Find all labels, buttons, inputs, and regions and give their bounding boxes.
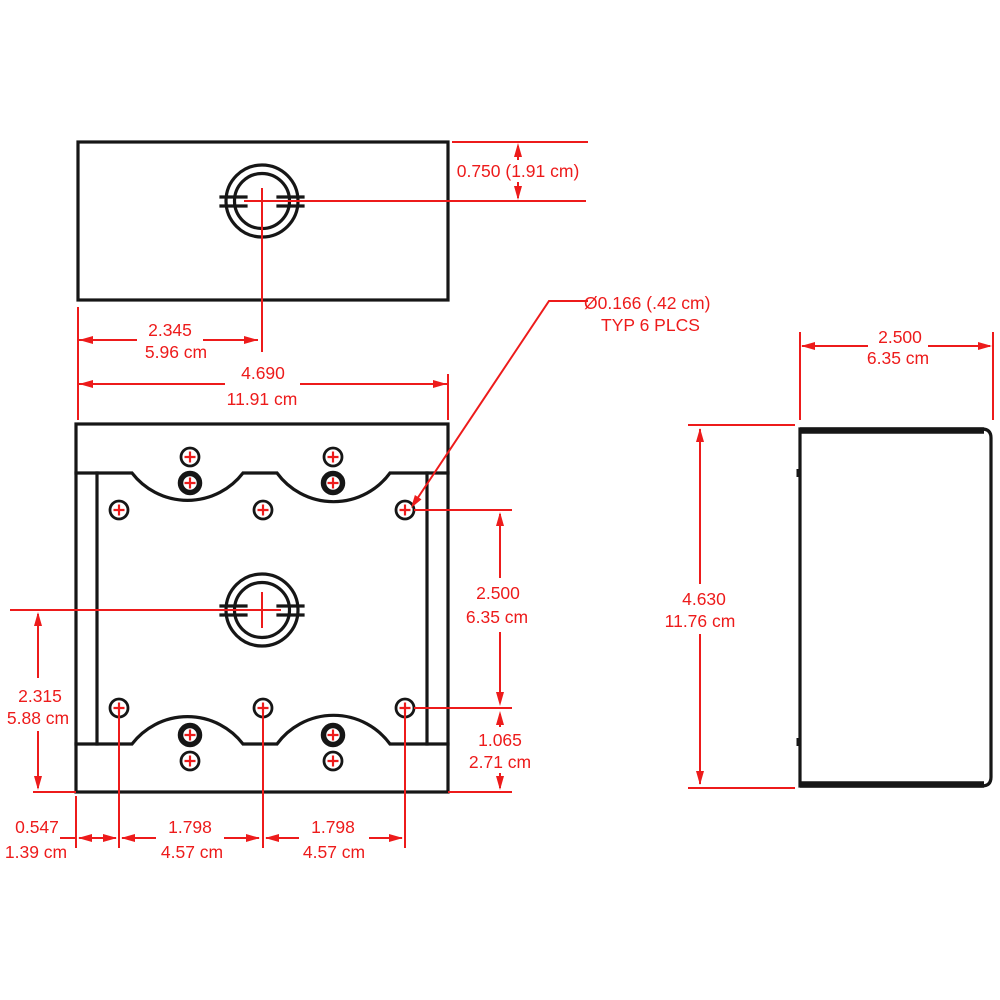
side-left-notch-bottom [797,738,802,746]
front-top-scallop [76,473,448,502]
dim-label-cm: 11.76 cm [665,611,736,631]
dim-side-depth: 2.500 6.35 cm [800,327,993,420]
dim-label-cm: 5.88 cm [7,708,69,728]
dim-hole-to-bottom: 1.065 2.71 cm [448,711,531,792]
side-left-notch-top [797,469,802,477]
dim-label-in: 2.345 [148,320,192,340]
dim-center-to-bottom: 2.315 5.88 cm [7,612,76,792]
dim-label-in: 2.315 [18,686,62,706]
dim-label-in: 4.630 [682,589,726,609]
dim-label-cm: 11.91 cm [227,389,298,409]
dim-label-in: 2.500 [878,327,922,347]
hole-callout-line1: Ø0.166 (.42 cm) [584,293,710,313]
hole-callout-line2: TYP 6 PLCS [601,315,700,335]
dim-hole-spacing-right: 1.798 4.57 cm [265,817,403,862]
side-view-outline [800,429,991,786]
dim-label-in: 1.065 [478,730,522,750]
dim-label-cm: 4.57 cm [303,842,365,862]
dim-label-in: 2.500 [476,583,520,603]
technical-drawing: 0.750 (1.91 cm) 2.345 5.96 cm 4.690 11.9… [0,0,1000,1000]
dim-label-in: 1.798 [311,817,355,837]
dim-label-cm: 4.57 cm [161,842,223,862]
front-view-centerlines [10,592,281,628]
dim-hole-row-spacing: 2.500 6.35 cm [414,510,528,708]
drawing-canvas: 0.750 (1.91 cm) 2.345 5.96 cm 4.690 11.9… [0,0,1000,1000]
dim-knockout-offset-label: 0.750 (1.91 cm) [457,161,580,181]
bottom-extension-lines [76,708,405,848]
dim-label-cm: 6.35 cm [867,348,929,368]
side-view [797,429,992,786]
dim-label-cm: 1.39 cm [5,842,67,862]
dim-edge-to-first-hole: 0.547 1.39 cm [5,817,117,862]
dim-label-cm: 5.96 cm [145,342,207,362]
dim-label-in: 1.798 [168,817,212,837]
dim-side-height: 4.630 11.76 cm [665,425,795,788]
hole-callout: Ø0.166 (.42 cm) TYP 6 PLCS [411,293,710,508]
dim-label-in: 0.547 [15,817,59,837]
dim-label-cm: 6.35 cm [466,607,528,627]
dim-hole-spacing-left: 1.798 4.57 cm [121,817,260,862]
dim-knockout-offset: 0.750 (1.91 cm) [452,142,588,200]
dim-label-in: 4.690 [241,363,285,383]
dim-label-cm: 2.71 cm [469,752,531,772]
dim-overall-width: 4.690 11.91 cm [78,363,448,420]
